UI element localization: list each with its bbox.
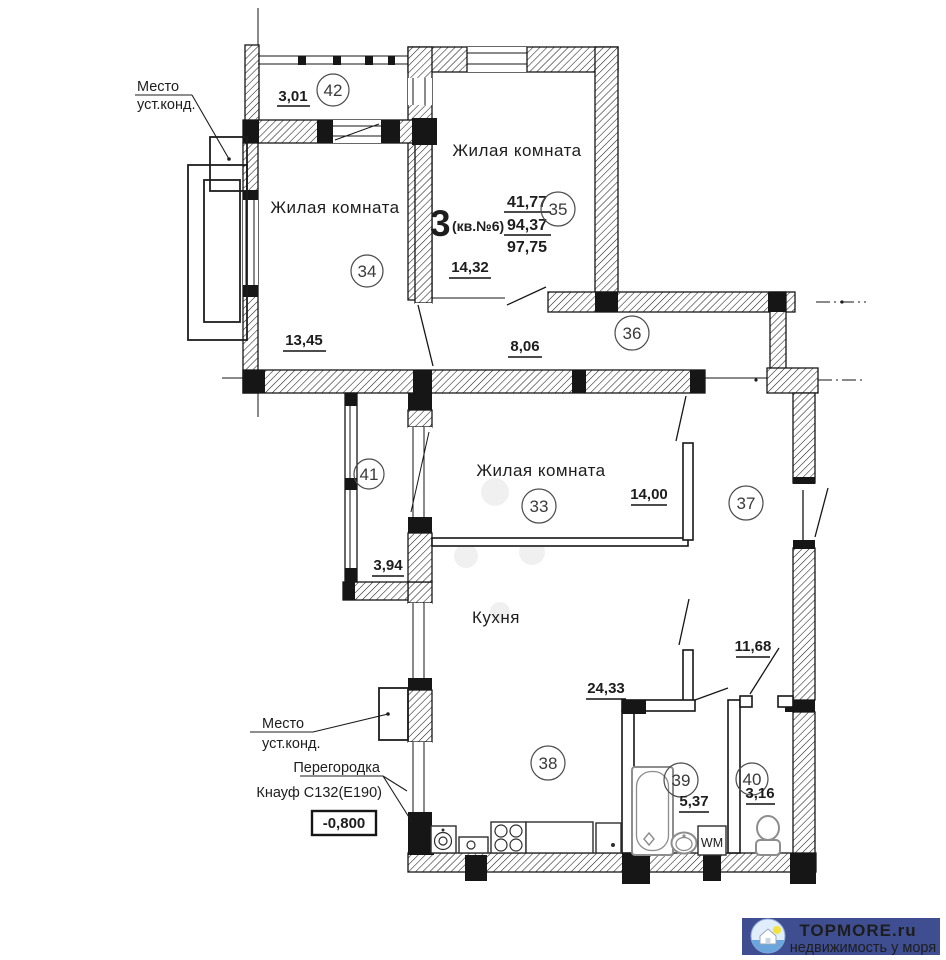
dim-room-34: 13,45 bbox=[285, 332, 323, 349]
dim-room-33: 14,00 bbox=[630, 486, 668, 503]
elevation-value: -0,800 bbox=[323, 815, 366, 832]
floor-plan-drawing: WM bbox=[0, 0, 946, 960]
dim-room-35: 14,32 bbox=[451, 259, 489, 276]
elevation-mark: -0,800 bbox=[312, 811, 376, 835]
stove bbox=[491, 822, 526, 853]
bathtub bbox=[632, 767, 673, 855]
room-35-number: 35 bbox=[549, 200, 568, 219]
room-42-number: 42 bbox=[324, 81, 343, 100]
room-39-number: 39 bbox=[672, 771, 691, 790]
room-36-number: 36 bbox=[623, 324, 642, 343]
door-room33 bbox=[676, 396, 686, 441]
dim-room-42: 3,01 bbox=[278, 88, 307, 105]
window-balcony-room35 bbox=[408, 78, 432, 105]
logo-tagline: недвижимость у моря bbox=[790, 940, 936, 956]
washing-machine-label: WM bbox=[701, 836, 723, 850]
room-38-number: 38 bbox=[539, 754, 558, 773]
ac-spot-top-rect bbox=[210, 137, 247, 191]
room-34-label: Жилая комната bbox=[270, 198, 399, 217]
ac-bottom-label-2: уст.конд. bbox=[262, 736, 320, 752]
apartment-total-area: 97,75 bbox=[507, 239, 547, 256]
window-room41-right bbox=[408, 427, 432, 517]
loggia-glazing-room41 bbox=[345, 393, 357, 582]
kitchen-sink bbox=[431, 826, 456, 853]
room-38-label: Кухня bbox=[472, 608, 520, 627]
room-41-number: 41 bbox=[360, 465, 379, 484]
dim-room-40: 3,16 bbox=[745, 785, 774, 802]
partition-label-2: Кнауф С132(Е190) bbox=[256, 785, 382, 801]
logo-brand[interactable]: TOPMORE.ru bbox=[799, 921, 916, 940]
apartment-type: 3 bbox=[430, 203, 451, 244]
dim-room-37: 11,68 bbox=[735, 638, 772, 655]
ac-annotations bbox=[135, 95, 408, 740]
apartment-floor-area: 94,37 bbox=[507, 217, 547, 234]
bath-sink bbox=[672, 833, 697, 854]
ac-top-label-1: Место bbox=[137, 79, 179, 95]
logo-icon bbox=[751, 919, 785, 953]
ac-spot-bottom-rect bbox=[379, 688, 408, 740]
door-room35 bbox=[507, 287, 546, 305]
kitchen-unit bbox=[596, 823, 621, 853]
apartment-suffix: (кв.№6) bbox=[452, 218, 504, 234]
dim-room-36: 8,06 bbox=[510, 338, 539, 355]
dim-room-39: 5,37 bbox=[679, 793, 708, 810]
room-33-number: 33 bbox=[530, 497, 549, 516]
room-37-number: 37 bbox=[737, 494, 756, 513]
entrance-door-swing bbox=[815, 488, 828, 537]
balcony-glazing bbox=[258, 56, 408, 65]
room-34-number: 34 bbox=[358, 262, 377, 281]
dim-room-41: 3,94 bbox=[373, 557, 403, 574]
window-kitchen-upper bbox=[408, 603, 432, 678]
partition-label-1: Перегородка bbox=[293, 760, 381, 776]
dim-room-38: 24,33 bbox=[587, 680, 625, 697]
window-room34-left bbox=[243, 190, 258, 297]
door-bath bbox=[695, 688, 728, 700]
window-room34-top bbox=[317, 120, 400, 143]
windows bbox=[243, 47, 527, 812]
toilet bbox=[756, 816, 780, 855]
ac-top-label-2: уст.конд. bbox=[137, 97, 195, 113]
window-kitchen-lower bbox=[408, 742, 432, 812]
ac-bottom-label-1: Место bbox=[262, 716, 304, 732]
window-room35-top bbox=[467, 47, 527, 72]
kitchen-cabinet bbox=[459, 837, 488, 853]
door-kitchen-hall bbox=[679, 599, 689, 645]
logo-banner[interactable]: TOPMORE.ru недвижимость у моря bbox=[742, 918, 940, 956]
kitchen-counter bbox=[526, 822, 593, 853]
room-35-label: Жилая комната bbox=[452, 141, 581, 160]
room-33-label: Жилая комната bbox=[476, 461, 605, 480]
apartment-title: 3 (кв.№6) 41,77 94,37 97,75 bbox=[430, 194, 551, 256]
floor-plan-page: WM bbox=[0, 0, 946, 960]
washing-machine: WM bbox=[698, 826, 726, 855]
